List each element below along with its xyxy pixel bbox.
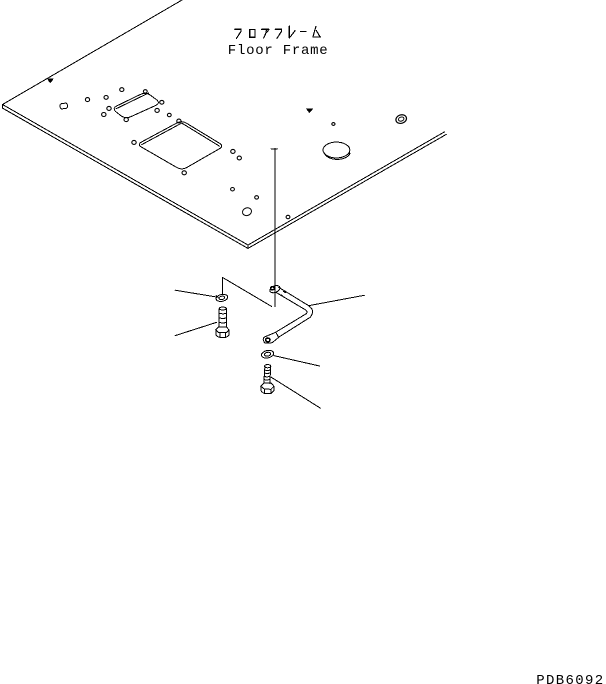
svg-text:Floor Frame: Floor Frame [228,43,329,59]
svg-text:PDB6092: PDB6092 [536,673,604,684]
